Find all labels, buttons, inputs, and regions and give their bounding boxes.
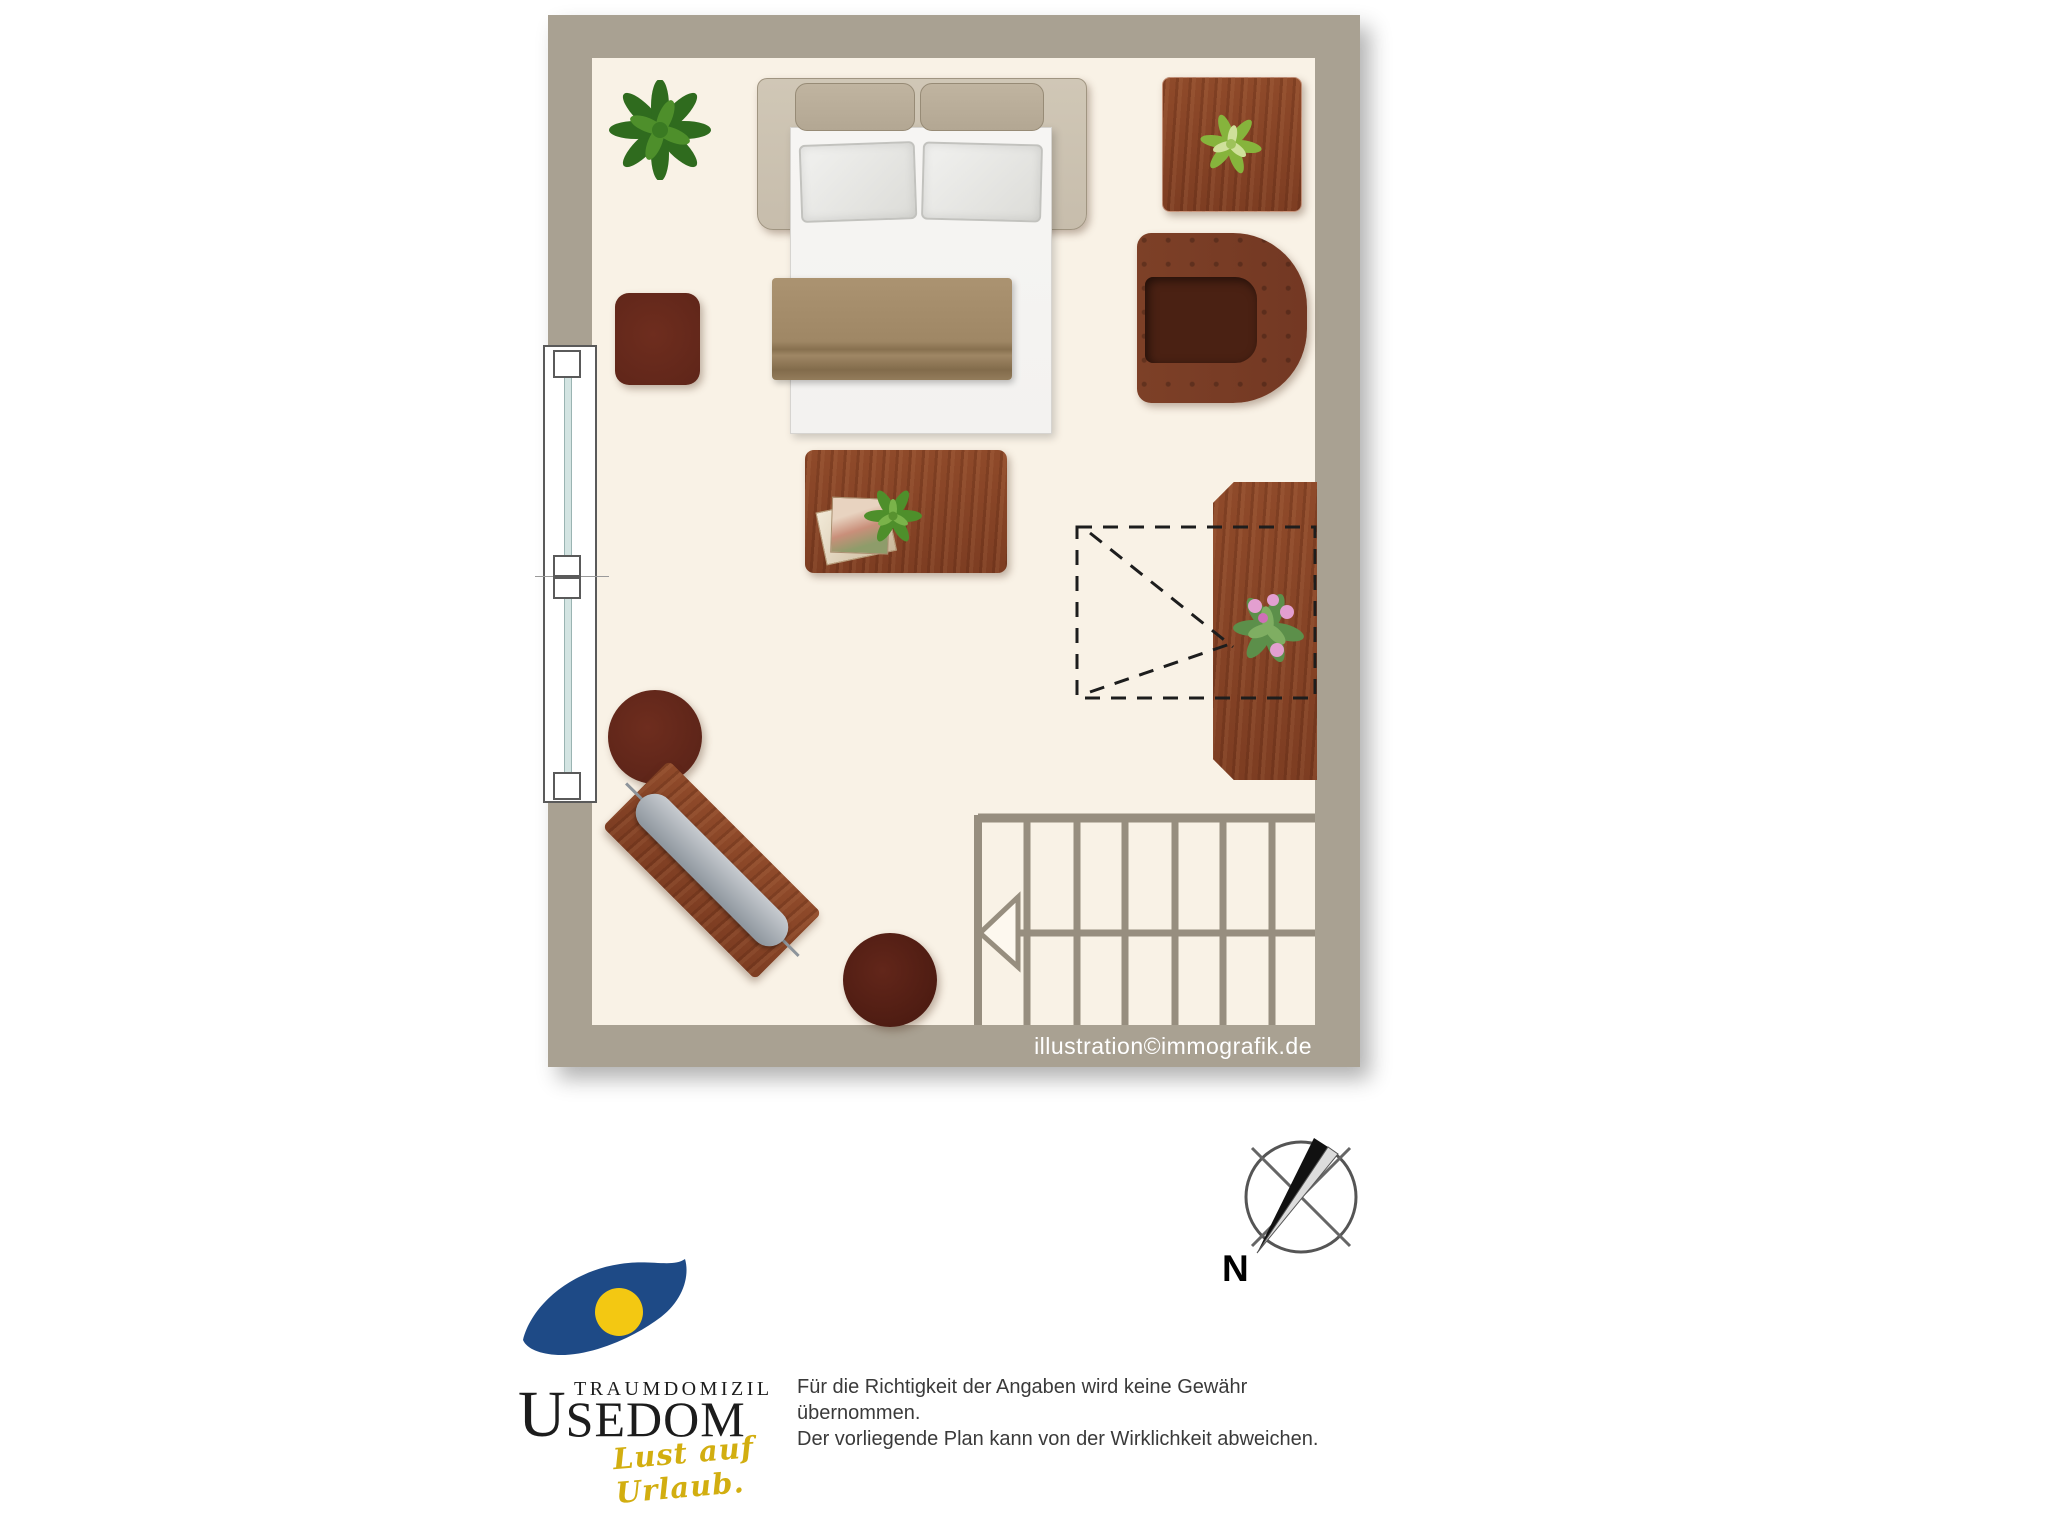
window-mullion [553, 350, 581, 378]
bed-back-cushion [920, 83, 1044, 131]
watermark: illustration©immografik.de [1034, 1033, 1312, 1060]
round-stool [843, 933, 937, 1027]
disclaimer-text: Für die Richtigkeit der Angaben wird kei… [797, 1374, 1357, 1452]
north-label: N [1222, 1248, 1249, 1290]
logo-initial: U [518, 1378, 566, 1451]
bed-pillow [799, 141, 918, 223]
compass-needle-light [1257, 1147, 1338, 1253]
leather-armchair [1137, 233, 1307, 403]
compass-needle-dark [1257, 1138, 1328, 1253]
square-pouf [615, 293, 700, 385]
magazines [814, 491, 904, 570]
side-table [1162, 77, 1302, 212]
bed-back-cushion [795, 83, 915, 131]
floor-plan: illustration©immografik.de [548, 15, 1360, 1067]
bed-blanket [772, 278, 1012, 380]
disclaimer-line2: Der vorliegende Plan kann von der Wirkli… [797, 1426, 1357, 1452]
window-mullion [553, 577, 581, 599]
armchair-seat [1145, 277, 1257, 363]
bed-pillow [921, 141, 1043, 222]
logo-eye-icon [520, 1258, 720, 1374]
compass-icon [1236, 1132, 1368, 1264]
window-mullion [553, 555, 581, 577]
round-pouf [608, 690, 702, 784]
disclaimer-line1: Für die Richtigkeit der Angaben wird kei… [797, 1374, 1357, 1426]
magazine [830, 497, 890, 555]
sideboard [1213, 482, 1317, 780]
coffee-table [805, 450, 1007, 573]
window-mullion [553, 772, 581, 800]
floorplan-page: illustration©immografik.de N TRAUMDOMIZI… [0, 0, 2048, 1538]
window [543, 345, 597, 803]
